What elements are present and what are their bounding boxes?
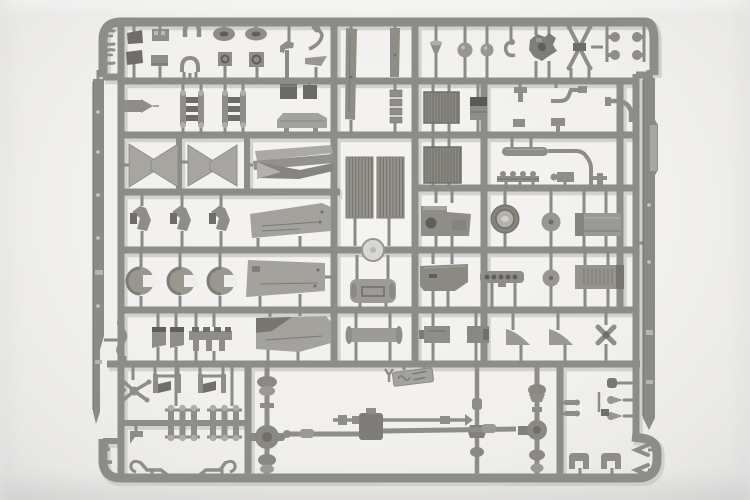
part-mount-bracket-3 xyxy=(209,206,230,231)
part-pedal-assembly-2 xyxy=(198,374,226,393)
part-rod-with-foot xyxy=(599,392,609,416)
part-plank-short xyxy=(390,28,400,77)
part-t-bracket xyxy=(514,87,527,102)
part-scissor-cross-part xyxy=(567,25,593,71)
part-lever-hook xyxy=(280,41,294,79)
part-mount-bracket-2 xyxy=(170,206,191,231)
part-muffler xyxy=(502,147,548,156)
sprue-photo xyxy=(0,0,750,500)
part-brand-logo-plate xyxy=(385,368,434,387)
part-idler-disc-2 xyxy=(543,270,560,287)
part-l-bracket xyxy=(130,431,143,444)
part-leaf-spring-links xyxy=(390,90,402,123)
part-shock-ladder-1 xyxy=(165,405,200,441)
part-canvas-tilt-half-1 xyxy=(346,157,373,218)
part-fuel-tank xyxy=(575,213,621,236)
part-mushroom-pin-1 xyxy=(607,396,623,404)
part-flag-bracket-1 xyxy=(127,30,143,44)
part-j-hook xyxy=(506,39,515,56)
part-ball-joint-2 xyxy=(481,44,494,57)
part-leaf-spring-assembly xyxy=(189,327,232,351)
part-ramp-bracket-1 xyxy=(506,329,530,345)
part-engine-block xyxy=(421,206,471,236)
part-bed-side-panel xyxy=(246,260,325,297)
part-spike-arrow-part xyxy=(124,99,159,113)
part-brake-drum-1 xyxy=(126,267,156,295)
part-notched-box xyxy=(152,29,169,41)
part-clip-bracket-2 xyxy=(513,119,525,127)
part-funnel-cone xyxy=(430,41,442,54)
part-idler-disc xyxy=(542,213,561,232)
part-plank-long xyxy=(345,28,357,120)
part-step-box-2 xyxy=(467,326,489,343)
part-plain-box xyxy=(151,55,168,66)
part-ramp-bracket-2 xyxy=(549,329,573,345)
part-bowtie-panel-1 xyxy=(129,144,178,187)
part-mount-bracket-1 xyxy=(130,206,151,231)
part-hood-side-panel xyxy=(250,203,331,238)
part-molding-hub-disc xyxy=(362,239,384,261)
part-clip-bracket-1 xyxy=(551,118,565,133)
part-fender-panel-stack xyxy=(253,145,333,179)
part-canvas-tilt-half-2 xyxy=(377,157,404,218)
part-t-stub-part xyxy=(593,173,607,185)
part-oval-mount-1 xyxy=(213,27,235,41)
part-fan-cross xyxy=(598,327,614,343)
part-hood-top-panel xyxy=(256,316,331,352)
part-knob-cap xyxy=(607,378,617,388)
part-fork-chevron-1 xyxy=(636,445,648,455)
part-drive-shaft-upper xyxy=(333,414,473,426)
part-mushroom-pin-2 xyxy=(607,412,623,420)
part-pedal-assembly-1 xyxy=(153,374,181,393)
photo-backdrop xyxy=(0,0,750,500)
part-brake-drum-2 xyxy=(167,267,197,295)
part-step-box-1 xyxy=(419,326,450,343)
part-spring-shackle-1 xyxy=(180,90,204,128)
part-battery-box xyxy=(470,97,487,120)
part-flag-bracket-2 xyxy=(126,50,143,65)
part-pipe-flange-block xyxy=(551,172,575,182)
part-exhaust-pipe-bent xyxy=(548,151,591,188)
part-ball-joint-1 xyxy=(458,43,473,58)
part-pedal-pad-2 xyxy=(303,85,317,99)
part-channel-clamp-2 xyxy=(601,453,621,469)
part-brake-drum-3 xyxy=(207,267,237,295)
part-chassis-rail-left xyxy=(93,79,104,424)
part-bolt-stub-1 xyxy=(564,400,580,406)
part-channel-clamp-1 xyxy=(569,453,589,469)
part-engine-mount-bracket xyxy=(529,33,557,61)
part-ring-box-1 xyxy=(218,52,232,66)
part-dogbone-brace xyxy=(346,326,403,344)
part-wedge-block-1 xyxy=(152,327,166,348)
part-radiator-shell-box xyxy=(575,265,624,289)
part-spring-shackle-2 xyxy=(222,90,246,128)
part-oval-mount-2 xyxy=(245,28,267,41)
part-bowtie-panel-2 xyxy=(188,145,237,186)
part-mushroom-plugs xyxy=(607,32,645,60)
part-radiator-grille-2 xyxy=(424,147,461,183)
part-shock-ladder-2 xyxy=(207,405,242,441)
part-pedal-pad-1 xyxy=(280,84,297,99)
part-chassis-rail-right xyxy=(643,78,658,430)
part-radiator-grille-1 xyxy=(424,92,459,123)
part-pulley-wheel xyxy=(491,205,519,233)
part-bolt-stub-2 xyxy=(564,411,580,417)
part-gearbox-housing xyxy=(420,264,468,291)
part-seat-cushion xyxy=(350,279,396,303)
part-small-wing xyxy=(305,56,327,66)
part-rear-axle-assembly xyxy=(518,367,547,476)
part-ring-box-2 xyxy=(249,52,264,67)
part-exhaust-manifold xyxy=(497,171,539,182)
part-wedge-block-2 xyxy=(170,327,184,348)
